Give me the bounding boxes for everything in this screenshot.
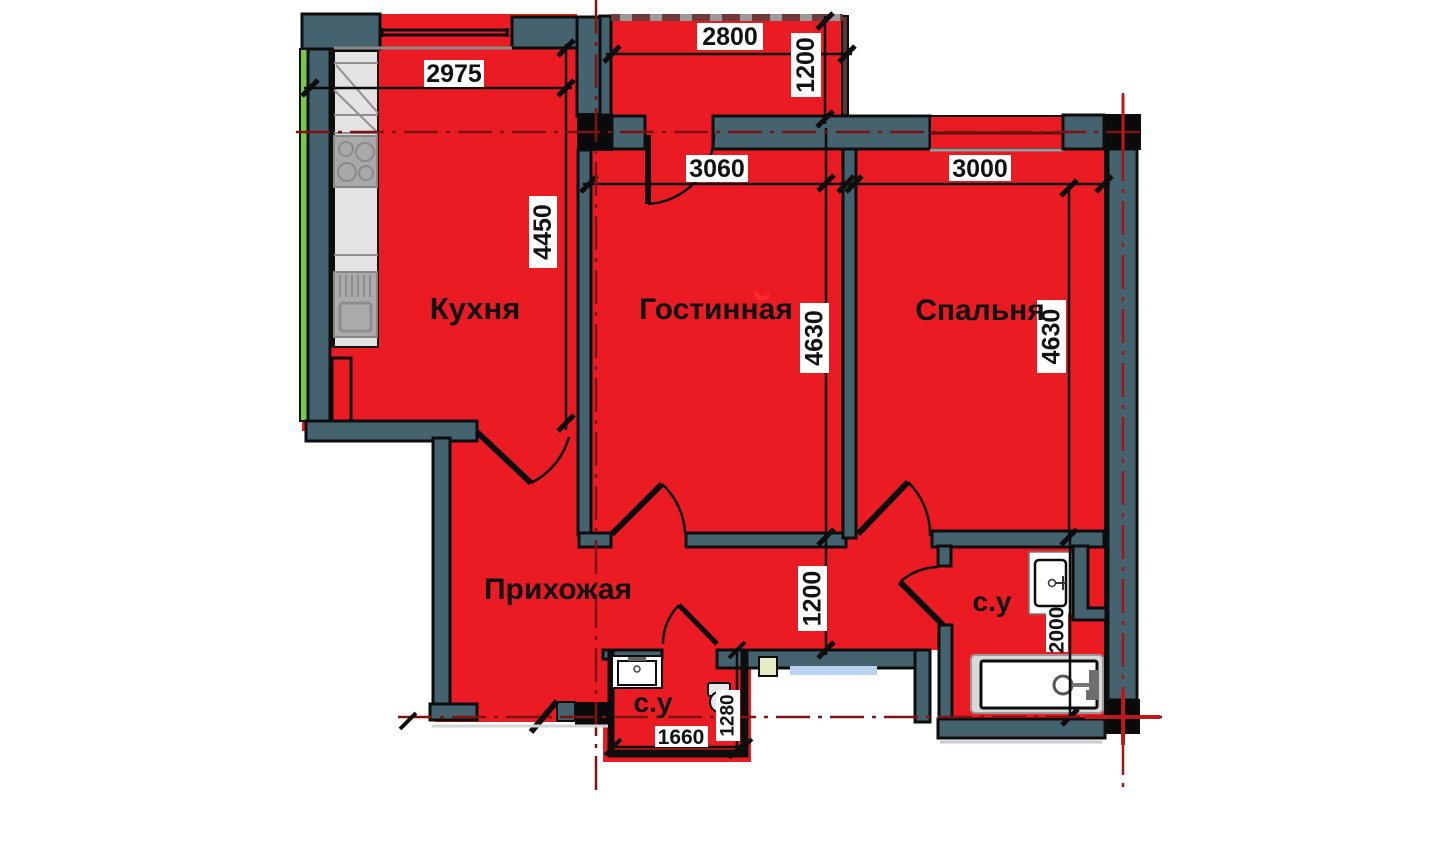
svg-text:с.у: с.у (973, 586, 1012, 617)
svg-text:2975: 2975 (426, 60, 482, 88)
svg-text:2800: 2800 (702, 23, 758, 51)
svg-text:4630: 4630 (801, 310, 829, 366)
svg-text:Спальня: Спальня (915, 294, 1045, 327)
svg-text:1200: 1200 (799, 571, 827, 627)
svg-text:1660: 1660 (658, 726, 705, 749)
svg-text:1280: 1280 (718, 694, 739, 736)
svg-text:Кухня: Кухня (430, 291, 521, 326)
svg-text:3000: 3000 (952, 155, 1008, 183)
svg-text:Прихожая: Прихожая (484, 573, 632, 606)
svg-text:с.у: с.у (634, 687, 673, 718)
svg-text:1200: 1200 (792, 37, 820, 93)
svg-text:2000: 2000 (1046, 607, 1069, 654)
svg-text:4450: 4450 (529, 204, 557, 260)
svg-text:3060: 3060 (689, 155, 745, 183)
svg-text:Гостинная: Гостинная (639, 293, 793, 326)
